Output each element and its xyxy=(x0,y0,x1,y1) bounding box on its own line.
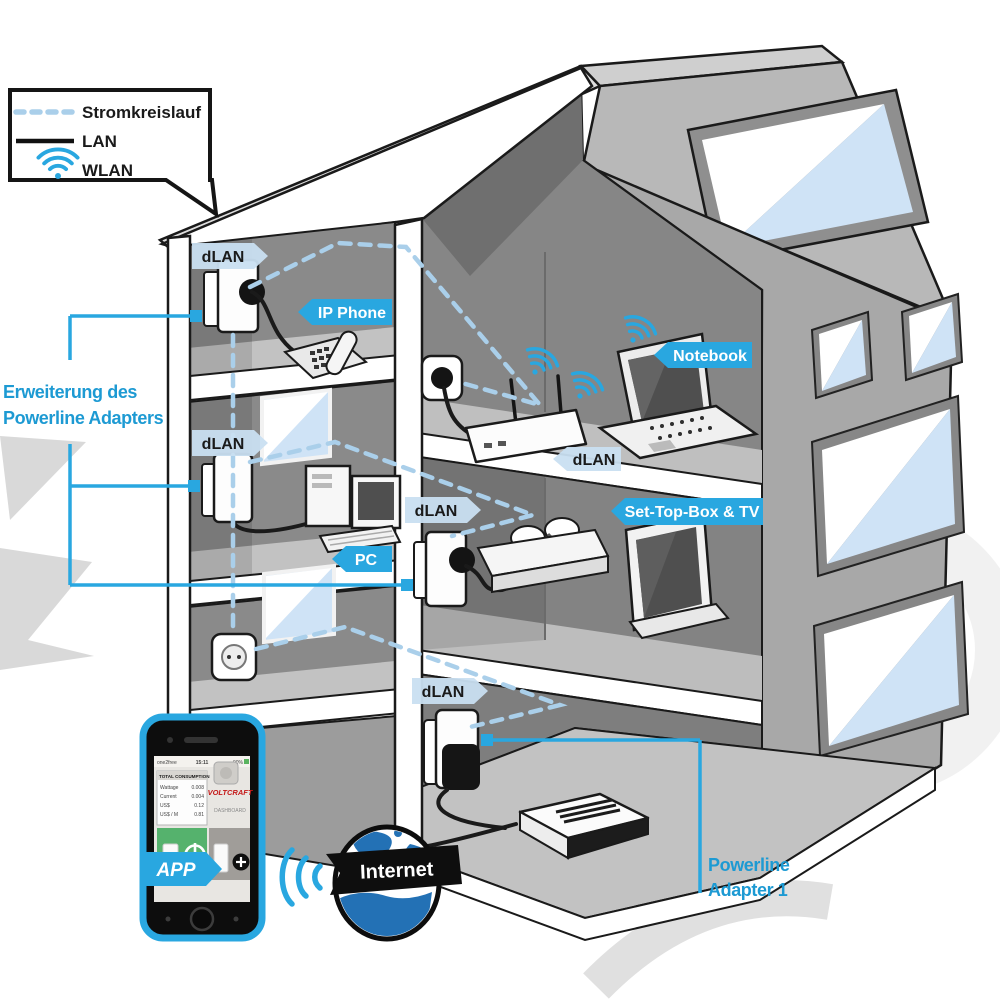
table-row-label: US$ xyxy=(160,803,170,809)
tag-dlan-floor2-left: dLAN xyxy=(192,430,268,456)
tag-dlan-ground: dLAN xyxy=(412,678,488,704)
tag-dlan-router-label: dLAN xyxy=(573,452,616,469)
phone-home-button xyxy=(191,908,213,930)
tag-dlan-floor1-label: dLAN xyxy=(202,249,245,266)
table-row-value: 0.004 xyxy=(191,794,204,800)
legend-item-wlan: WLAN xyxy=(82,161,133,180)
diagram-canvas: dLAN IP Phone Notebook dLAN dLAN dLAN PC… xyxy=(0,0,1000,1000)
phone-speaker xyxy=(184,737,218,743)
tag-dlan-ground-label: dLAN xyxy=(422,684,465,701)
table-row-label: Wattage xyxy=(160,785,179,791)
powerline-adapter-floor2-left xyxy=(202,454,252,522)
adapter1-callout-line2: Adapter 1 xyxy=(708,880,788,900)
table-title: TOTAL CONSUMPTION xyxy=(159,774,210,779)
tag-ip-phone-label: IP Phone xyxy=(318,305,386,322)
table-row-label: US$ / M xyxy=(160,812,178,818)
adapter1-callout-line1: Powerline xyxy=(708,855,790,875)
tag-dlan-floor2-right-label: dLAN xyxy=(415,503,458,520)
wall-socket-floor1 xyxy=(422,356,462,400)
extension-callout-line2: Powerline Adapters xyxy=(3,408,164,428)
internet-banner-label: Internet xyxy=(360,858,435,883)
tag-ip-phone: IP Phone xyxy=(298,299,392,325)
consumption-table: TOTAL CONSUMPTION Wattage 0.008 Current … xyxy=(157,771,210,825)
table-row-label: Current xyxy=(160,794,177,800)
dlan-home-network-diagram: dLAN IP Phone Notebook dLAN dLAN dLAN PC… xyxy=(0,0,1000,1000)
tag-dlan-floor2-right: dLAN xyxy=(405,497,481,523)
callout-endpoint-3 xyxy=(401,579,413,591)
tag-pc-label: PC xyxy=(355,552,378,569)
tag-app: APP xyxy=(146,852,222,886)
callout-endpoint-2 xyxy=(188,480,200,492)
tag-notebook: Notebook xyxy=(654,342,752,368)
tag-notebook-label: Notebook xyxy=(673,348,747,365)
tag-dlan-floor1: dLAN xyxy=(192,243,268,269)
tag-settop-tv: Set-Top-Box & TV xyxy=(611,498,763,525)
smartphone: one2free 15:11 90% TOTAL CONSUMPTION Wat… xyxy=(143,717,262,938)
tag-dlan-router: dLAN xyxy=(553,447,621,471)
table-row-value: 0.81 xyxy=(194,812,204,818)
phone-status-carrier: one2free xyxy=(157,760,177,766)
table-row-value: 0.12 xyxy=(194,803,204,809)
table-row-value: 0.008 xyxy=(191,785,204,791)
powerline-adapter-floor2-right xyxy=(414,532,475,606)
wall-socket-floor3 xyxy=(212,634,256,680)
legend-item-lan: LAN xyxy=(82,132,117,151)
phone-camera xyxy=(167,737,173,743)
extension-callout-line1: Erweiterung des xyxy=(3,382,137,402)
callout-endpoint-1 xyxy=(190,310,202,322)
battery-icon xyxy=(244,759,249,764)
tag-dlan-floor2-left-label: dLAN xyxy=(202,436,245,453)
voltcraft-brand: VOLTCRAFT xyxy=(208,788,254,797)
phone-status-time: 15:11 xyxy=(196,760,209,766)
legend-item-stromkreislauf: Stromkreislauf xyxy=(82,103,201,122)
callout-endpoint-adapter1 xyxy=(481,734,493,746)
tag-settop-tv-label: Set-Top-Box & TV xyxy=(625,504,760,521)
legend: Stromkreislauf LAN WLAN xyxy=(10,90,216,214)
powerline-adapter-1-device xyxy=(424,710,480,790)
tag-app-label: APP xyxy=(155,860,195,881)
dashboard-label: DASHBOARD xyxy=(214,808,246,814)
